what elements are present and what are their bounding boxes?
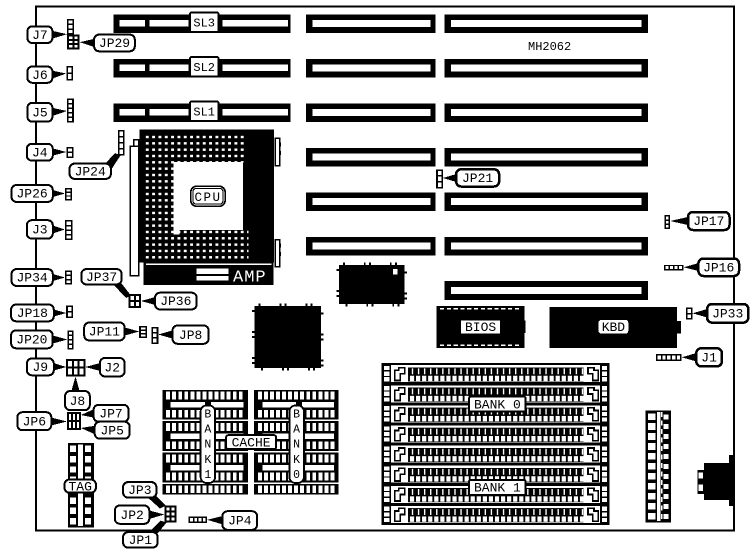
svg-text:B: B: [293, 409, 300, 422]
svg-text:JP3: JP3: [128, 483, 151, 498]
svg-text:JP24: JP24: [75, 164, 106, 179]
svg-text:A: A: [204, 424, 211, 437]
svg-text:JP4: JP4: [228, 514, 252, 529]
svg-text:J2: J2: [104, 360, 120, 375]
svg-text:B: B: [204, 409, 211, 422]
svg-text:SL3: SL3: [193, 17, 215, 31]
svg-text:K: K: [293, 454, 300, 467]
svg-text:JP2: JP2: [120, 508, 143, 523]
svg-text:1: 1: [204, 469, 211, 482]
svg-text:JP17: JP17: [693, 214, 724, 229]
svg-text:J8: J8: [70, 394, 86, 409]
svg-text:MH2062: MH2062: [528, 40, 571, 54]
svg-text:JP5: JP5: [100, 423, 123, 438]
svg-text:J3: J3: [32, 223, 48, 238]
svg-text:TAG: TAG: [68, 479, 91, 494]
svg-text:JP8: JP8: [179, 328, 202, 343]
svg-text:A: A: [293, 424, 300, 437]
svg-text:BANK 1: BANK 1: [474, 481, 521, 496]
svg-text:KBD: KBD: [602, 320, 626, 335]
svg-text:JP21: JP21: [462, 171, 493, 186]
svg-text:CACHE: CACHE: [232, 435, 271, 450]
svg-text:SL1: SL1: [193, 105, 215, 119]
svg-text:JP33: JP33: [712, 307, 743, 322]
svg-text:J7: J7: [32, 28, 48, 43]
svg-text:JP7: JP7: [99, 406, 122, 421]
svg-text:JP36: JP36: [160, 294, 191, 309]
svg-text:JP11: JP11: [89, 325, 120, 340]
svg-text:JP1: JP1: [129, 533, 153, 548]
svg-text:JP34: JP34: [16, 271, 47, 286]
svg-text:JP6: JP6: [23, 414, 46, 429]
svg-text:J9: J9: [32, 360, 48, 375]
svg-text:BANK 0: BANK 0: [474, 397, 521, 412]
svg-text:J5: J5: [32, 106, 48, 121]
svg-text:JP26: JP26: [16, 187, 47, 202]
svg-text:JP20: JP20: [16, 333, 47, 348]
svg-text:JP16: JP16: [703, 260, 734, 275]
svg-text:JP18: JP18: [17, 306, 48, 321]
svg-text:CPU: CPU: [194, 191, 221, 205]
svg-text:N: N: [293, 439, 300, 452]
svg-text:J1: J1: [701, 351, 717, 366]
svg-text:BIOS: BIOS: [465, 320, 496, 335]
svg-text:N: N: [204, 439, 211, 452]
svg-text:JP37: JP37: [86, 270, 117, 285]
svg-text:K: K: [204, 454, 211, 467]
svg-text:J4: J4: [32, 145, 48, 160]
svg-text:SL2: SL2: [193, 61, 215, 75]
svg-text:J6: J6: [32, 68, 48, 83]
svg-text:0: 0: [293, 469, 300, 482]
svg-text:AMP: AMP: [233, 269, 267, 288]
svg-text:JP29: JP29: [99, 36, 130, 51]
